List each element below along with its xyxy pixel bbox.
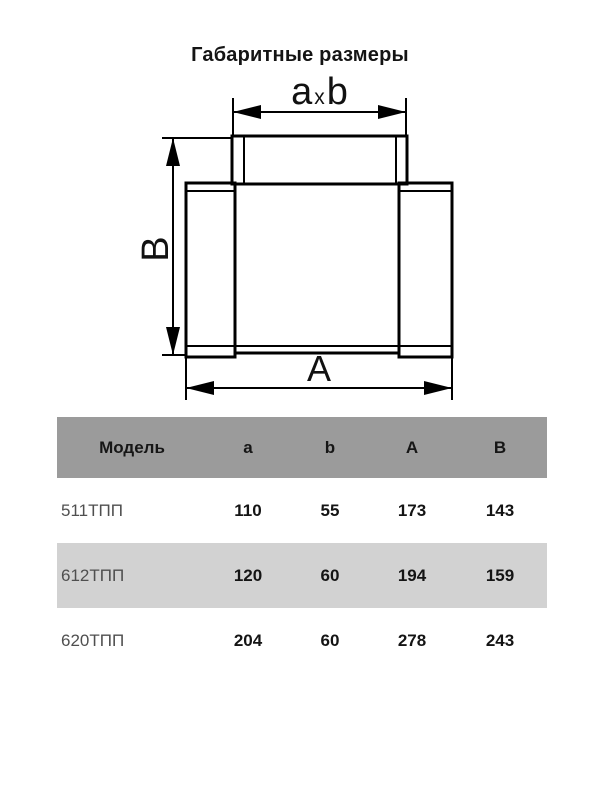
table-header-row: Модель a b A B	[57, 417, 547, 478]
dimension-label-B: B	[134, 226, 178, 272]
B-arrowhead-bottom	[166, 327, 180, 355]
value-A: 194	[371, 543, 453, 608]
B-arrowhead-top	[166, 138, 180, 166]
model-name: 612ТПП	[57, 543, 207, 608]
dimension-label-axb: a x b	[233, 72, 406, 112]
table-row: 612ТПП 120 60 194 159	[57, 543, 547, 608]
value-B: 143	[453, 478, 547, 543]
value-a: 120	[207, 543, 289, 608]
dimensions-table: Модель a b A B 511ТПП 110 55 173 143 612…	[57, 417, 547, 673]
model-name: 511ТПП	[57, 478, 207, 543]
value-a: 110	[207, 478, 289, 543]
dimension-label-A: A	[289, 350, 349, 388]
tee-branch	[232, 136, 407, 184]
value-B: 159	[453, 543, 547, 608]
column-header-b: b	[289, 417, 371, 478]
page: Габаритные размеры	[0, 0, 600, 800]
column-header-B: B	[453, 417, 547, 478]
dim-x-text: x	[312, 87, 327, 108]
value-a: 204	[207, 608, 289, 673]
table-row: 620ТПП 204 60 278 243	[57, 608, 547, 673]
value-A: 173	[371, 478, 453, 543]
dim-a-text: a	[291, 72, 312, 112]
value-b: 60	[289, 543, 371, 608]
left-flange	[186, 183, 235, 357]
table-row: 511ТПП 110 55 173 143	[57, 478, 547, 543]
A-arrowhead-right	[424, 381, 452, 395]
column-header-a: a	[207, 417, 289, 478]
A-arrowhead-left	[186, 381, 214, 395]
model-name: 620ТПП	[57, 608, 207, 673]
dimensional-diagram: a x b B A	[0, 0, 600, 412]
column-header-A: A	[371, 417, 453, 478]
value-b: 55	[289, 478, 371, 543]
right-flange	[399, 183, 452, 357]
value-b: 60	[289, 608, 371, 673]
dim-b-text: b	[327, 72, 348, 112]
value-B: 243	[453, 608, 547, 673]
column-header-model: Модель	[57, 417, 207, 478]
value-A: 278	[371, 608, 453, 673]
tee-body	[235, 184, 399, 353]
